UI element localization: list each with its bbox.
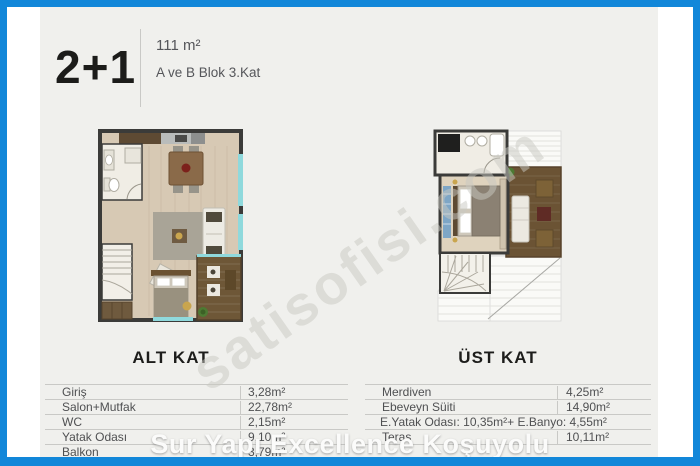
table-row: Giriş 3,28m² <box>45 385 348 400</box>
table-row: Yatak Odası 9,10m² <box>45 430 348 445</box>
alt-coffee-table <box>172 229 187 243</box>
alt-bathroom <box>102 144 142 200</box>
room-label: Yatak Odası <box>62 430 127 445</box>
ust-bathroom <box>435 131 507 175</box>
alt-wardrobe <box>102 302 132 319</box>
header-divider <box>140 29 141 107</box>
terrace-cushion <box>537 207 551 221</box>
room-area: 3,28m² <box>248 385 285 400</box>
alt-sofa <box>203 208 225 260</box>
table-row: Ebeveyn Süiti 14,90m² <box>365 400 651 415</box>
ust-stairs <box>440 253 490 293</box>
room-area: 4,25m² <box>566 385 603 400</box>
column-divider <box>240 401 241 414</box>
bedroom-bed <box>453 180 501 243</box>
column-divider <box>557 401 558 414</box>
alt-balcony <box>197 254 241 320</box>
table-row: Merdiven 4,25m² <box>365 385 651 400</box>
room-label: E.Yatak Odası: 10,35m²+ E.Banyo: 4,55m² <box>380 415 607 430</box>
room-label: Giriş <box>62 385 87 400</box>
column-divider <box>557 431 558 444</box>
apartment-type-label: 2+1 <box>55 40 136 94</box>
ust-bedroom <box>440 175 508 253</box>
alt-gold-marker <box>183 302 192 311</box>
terrace-lounger <box>512 196 529 242</box>
table-row: Salon+Mutfak 22,78m² <box>45 400 348 415</box>
table-row-span: E.Yatak Odası: 10,35m²+ E.Banyo: 4,55m² <box>365 415 651 430</box>
room-label: Teras <box>382 430 411 445</box>
caption-ust-kat: ÜST KAT <box>432 348 564 368</box>
ust-terrace <box>506 167 562 257</box>
room-label: Salon+Mutfak <box>62 400 136 415</box>
bedroom-runner-rug <box>443 186 451 238</box>
room-area: 22,78m² <box>248 400 292 415</box>
room-label: Merdiven <box>382 385 431 400</box>
floorplan-alt-kat <box>97 128 245 324</box>
total-area-label: 111 m² <box>156 37 200 54</box>
terrace-table <box>536 180 553 197</box>
room-label: Balkon <box>62 445 99 457</box>
area-table-alt: Giriş 3,28m² Salon+Mutfak 22,78m² WC 2,1… <box>45 384 348 457</box>
bedroom-wardrobe <box>500 179 506 249</box>
terrace-table-2 <box>536 230 553 247</box>
balcony-window-band <box>197 254 241 257</box>
caption-alt-kat: ALT KAT <box>97 348 245 368</box>
room-area: 9,10m² <box>248 430 285 445</box>
column-divider <box>240 446 241 457</box>
table-row: Balkon 3,79m² <box>45 445 348 457</box>
room-label: WC <box>62 415 82 430</box>
room-area: 14,90m² <box>566 400 610 415</box>
alt-bed <box>151 270 191 318</box>
room-label: Ebeveyn Süiti <box>382 400 455 415</box>
alt-stairs <box>102 244 132 300</box>
block-floor-label: A ve B Blok 3.Kat <box>156 65 260 80</box>
column-divider <box>240 431 241 444</box>
alt-kitchen-counter <box>119 133 205 144</box>
ust-roof-top <box>506 131 561 167</box>
floorplan-ust-kat <box>432 128 564 324</box>
room-area: 2,15m² <box>248 415 285 430</box>
column-divider <box>557 386 558 399</box>
table-row: Teras 10,11m² <box>365 430 651 445</box>
room-area: 10,11m² <box>566 430 609 445</box>
column-divider <box>240 386 241 399</box>
room-area: 3,79m² <box>248 445 285 457</box>
table-row: WC 2,15m² <box>45 415 348 430</box>
brochure-inner: 2+1 111 m² A ve B Blok 3.Kat <box>7 7 693 457</box>
column-divider <box>240 416 241 429</box>
brochure-frame: 2+1 111 m² A ve B Blok 3.Kat <box>0 0 700 466</box>
area-table-ust: Merdiven 4,25m² Ebeveyn Süiti 14,90m² E.… <box>365 384 651 445</box>
